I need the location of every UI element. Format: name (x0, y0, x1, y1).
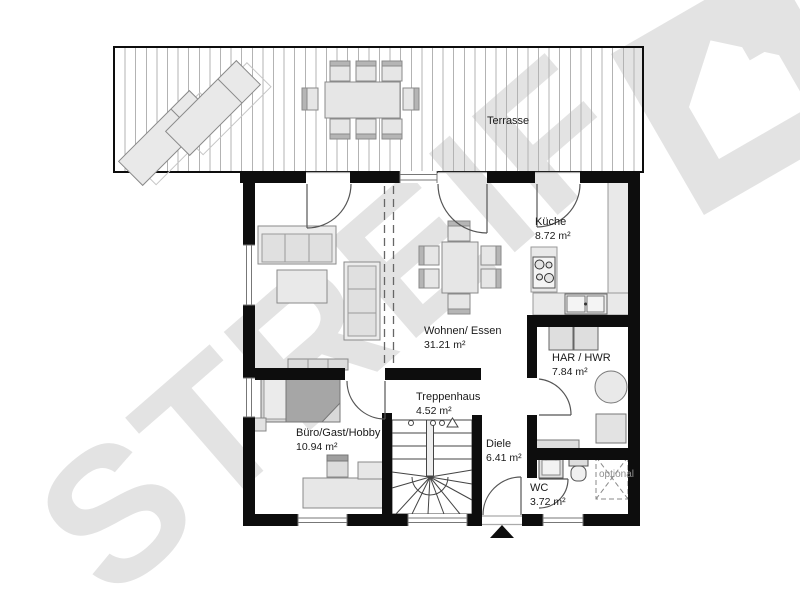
room-area: 3.72 m² (530, 495, 566, 509)
room-name: Terrasse (487, 114, 529, 128)
washer-dryer (549, 326, 598, 350)
annotation-text: optional (599, 468, 634, 482)
terrace-label: Terrasse (487, 114, 529, 128)
bed (261, 376, 340, 422)
sofa-small (344, 262, 380, 340)
room-name: Küche (535, 215, 571, 229)
room-name: HAR / HWR (552, 351, 611, 365)
entrance-arrow-icon (490, 525, 514, 538)
dining-set (419, 221, 501, 314)
kitchen-sink (565, 294, 607, 314)
room-area: 6.41 m² (486, 451, 522, 465)
terrace-dining-set (302, 61, 419, 139)
room-area: 7.84 m² (552, 365, 611, 379)
wc-sink (539, 457, 563, 478)
stove (533, 257, 555, 288)
room-label-wohnen-essen: Wohnen/ Essen 31.21 m² (424, 324, 501, 352)
optional-annotation: optional (599, 468, 634, 482)
sofa-large (258, 226, 336, 264)
room-area: 4.52 m² (416, 404, 480, 418)
room-name: Diele (486, 437, 522, 451)
utility-cabinet (596, 414, 626, 443)
room-label-treppenhaus: Treppenhaus 4.52 m² (416, 390, 480, 418)
room-label-wc: WC 3.72 m² (530, 481, 566, 509)
room-area: 8.72 m² (535, 229, 571, 243)
room-area: 10.94 m² (296, 440, 380, 454)
room-name: Treppenhaus (416, 390, 480, 404)
utility-shelf (534, 440, 579, 449)
room-label-har-hwr: HAR / HWR 7.84 m² (552, 351, 611, 379)
room-label-buero-gast-hobby: Büro/Gast/Hobby 10.94 m² (296, 426, 380, 454)
room-name: Büro/Gast/Hobby (296, 426, 380, 440)
room-label-diele: Diele 6.41 m² (486, 437, 522, 465)
staircase (392, 418, 472, 514)
optional-partition-lines (385, 186, 394, 368)
room-area: 31.21 m² (424, 338, 501, 352)
room-label-kueche: Küche 8.72 m² (535, 215, 571, 243)
toilet (569, 457, 588, 481)
floor-plan-canvas: STREIF (0, 0, 800, 600)
room-name: WC (530, 481, 566, 495)
desk-chair (327, 455, 348, 477)
room-name: Wohnen/ Essen (424, 324, 501, 338)
coffee-table (277, 270, 327, 303)
